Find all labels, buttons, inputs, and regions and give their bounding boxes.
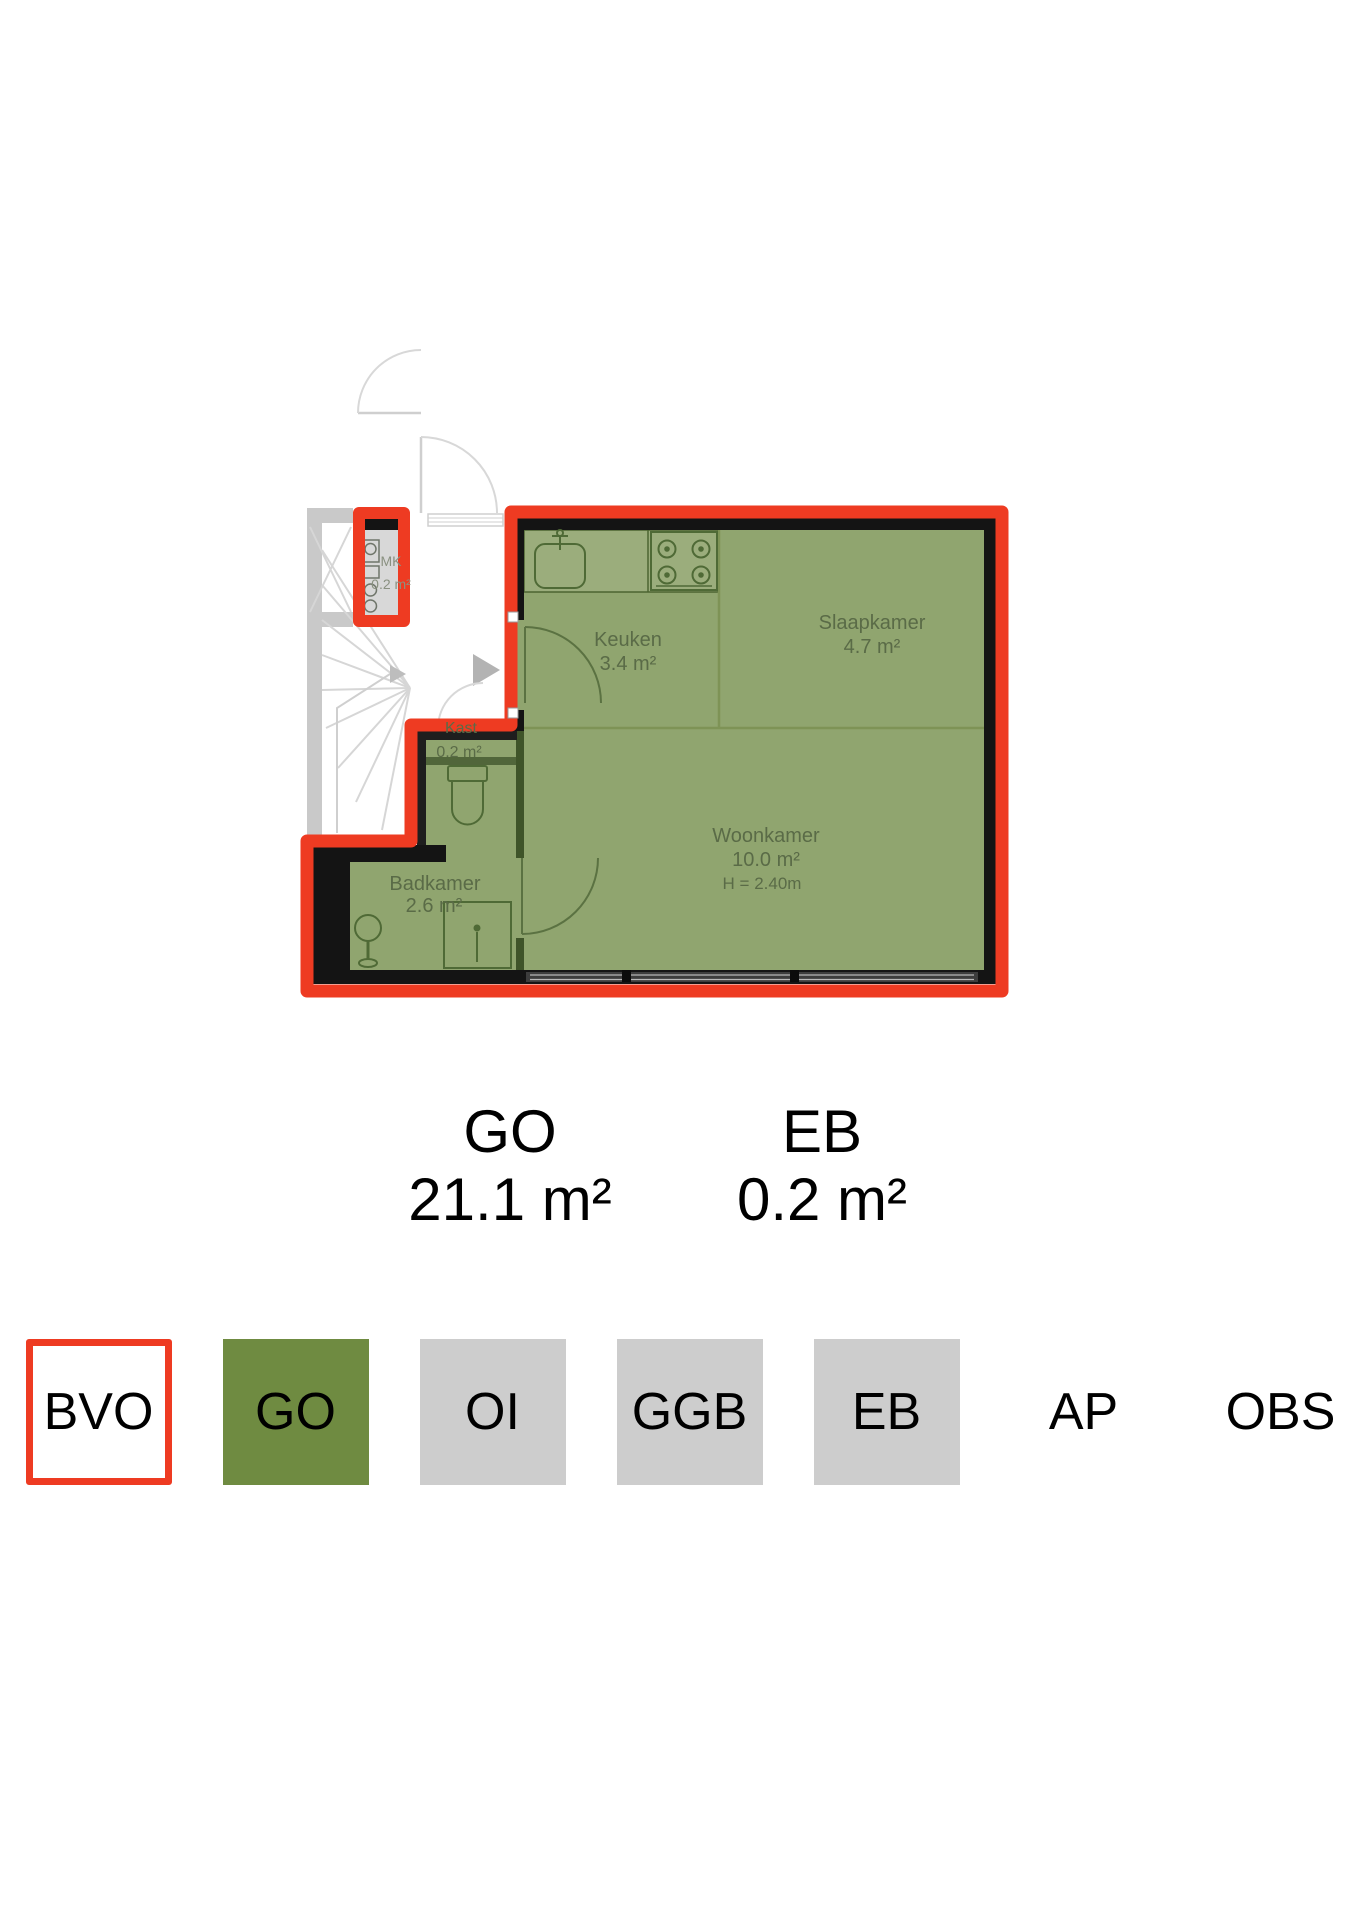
legend-label-ggb: GGB	[632, 1382, 748, 1442]
legend-swatch-eb: EB	[814, 1339, 960, 1485]
wall-badkamer-woonkamer	[516, 731, 524, 858]
wall-step	[306, 845, 446, 862]
kitchen-counter	[524, 530, 718, 592]
summary-go-value: 21.1 m²	[360, 1166, 660, 1234]
legend-swatch-oi: OI	[420, 1339, 566, 1485]
entry-threshold	[428, 514, 503, 526]
legend-item-bvo: BVO	[0, 1339, 197, 1485]
legend-swatch-bvo: BVO	[26, 1339, 172, 1485]
legend-item-ggb: GGB	[591, 1339, 788, 1485]
legend-swatch-go: GO	[223, 1339, 369, 1485]
legend-item-oi: OI	[394, 1339, 591, 1485]
stairwell-wall-left	[307, 508, 322, 845]
room-area-kast: 0.2 m²	[436, 744, 482, 761]
legend-label-eb: EB	[852, 1382, 921, 1442]
summary-eb: EB 0.2 m²	[672, 1098, 972, 1234]
wall-right	[984, 518, 997, 984]
stair-walk-line	[337, 674, 390, 833]
room-area-keuken: 3.4 m²	[600, 653, 657, 675]
floor-plan: MK 0.2 m² Keuken 3.4 m² Slaapkamer 4.7 m…	[0, 0, 1358, 1920]
legend: BVO GO OI GGB EB AP OBS	[0, 1339, 1358, 1485]
room-height-woonkamer: H = 2.40m	[723, 874, 802, 893]
wall-top	[511, 518, 990, 530]
summary-eb-value: 0.2 m²	[672, 1166, 972, 1234]
legend-label-bvo: BVO	[44, 1382, 154, 1442]
entry-door	[421, 437, 497, 513]
room-label-woonkamer: Woonkamer	[712, 825, 820, 847]
legend-label-obs: OBS	[1226, 1382, 1336, 1442]
room-area-woonkamer: 10.0 m²	[732, 849, 800, 871]
summary-go: GO 21.1 m²	[360, 1098, 660, 1234]
summary-eb-label: EB	[672, 1098, 972, 1166]
room-area-badkamer: 2.6 m²	[406, 895, 463, 917]
building-door	[358, 350, 421, 413]
room-label-badkamer: Badkamer	[389, 873, 480, 895]
room-area-mk: 0.2 m²	[371, 576, 411, 592]
wall-kast-right	[417, 731, 426, 845]
legend-item-obs: OBS	[1182, 1339, 1358, 1485]
legend-item-ap: AP	[985, 1339, 1182, 1485]
room-label-mk: MK	[381, 553, 403, 569]
legend-label-oi: OI	[465, 1382, 520, 1442]
room-label-keuken: Keuken	[594, 629, 662, 651]
stairwell-wall-top	[307, 508, 353, 523]
room-label-kast: Kast	[445, 720, 478, 737]
summary-go-label: GO	[360, 1098, 660, 1166]
legend-swatch-ggb: GGB	[617, 1339, 763, 1485]
entrance-arrow-icon	[473, 654, 500, 686]
legend-item-go: GO	[197, 1339, 394, 1485]
legend-label-go: GO	[255, 1382, 336, 1442]
legend-item-eb: EB	[788, 1339, 985, 1485]
room-label-slaapkamer: Slaapkamer	[819, 612, 926, 634]
wall-badkamer-stub	[516, 938, 524, 971]
floorplan-page: MK 0.2 m² Keuken 3.4 m² Slaapkamer 4.7 m…	[0, 0, 1358, 1920]
legend-label-ap: AP	[1049, 1382, 1118, 1442]
room-area-slaapkamer: 4.7 m²	[844, 636, 901, 658]
